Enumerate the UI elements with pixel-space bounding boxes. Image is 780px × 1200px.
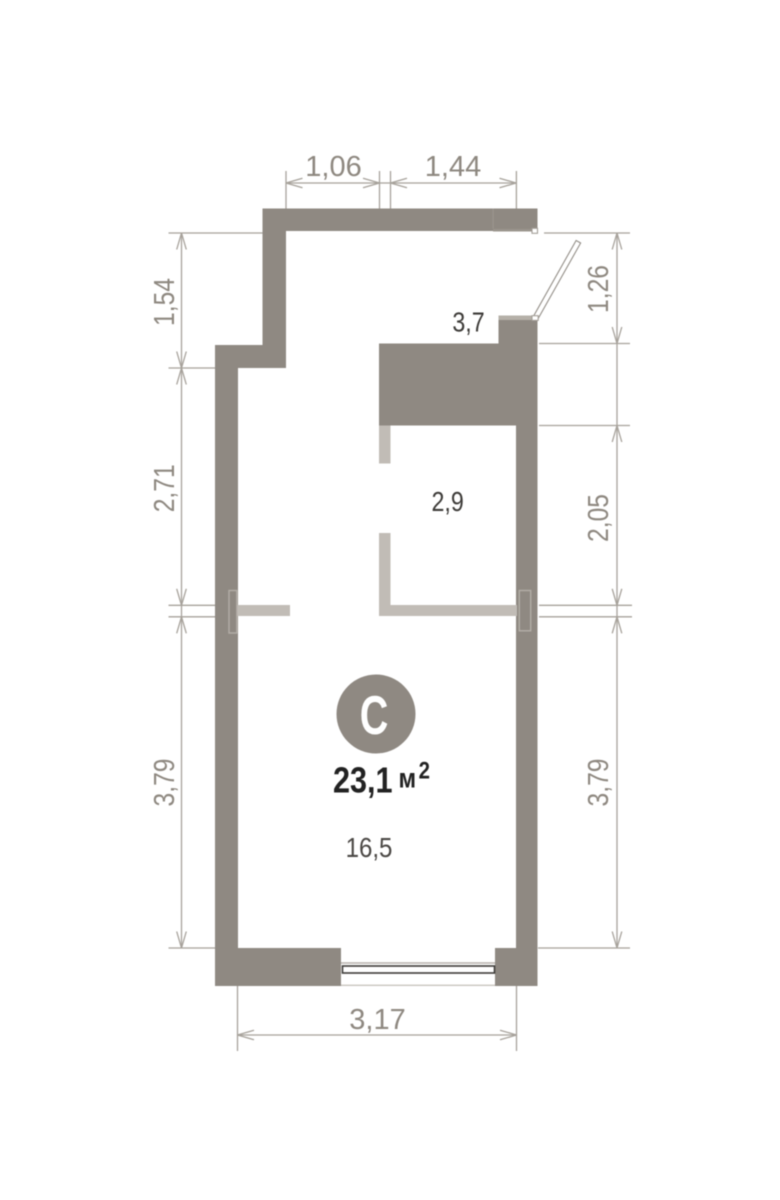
svg-text:2,71: 2,71: [148, 464, 180, 512]
svg-text:3,17: 3,17: [349, 1004, 405, 1036]
svg-text:1,26: 1,26: [582, 265, 614, 313]
svg-text:1,54: 1,54: [148, 278, 180, 326]
svg-text:16,5: 16,5: [346, 831, 393, 863]
svg-text:2,9: 2,9: [431, 487, 463, 517]
svg-text:3,79: 3,79: [148, 759, 180, 807]
svg-text:3,7: 3,7: [452, 308, 484, 338]
svg-text:1,44: 1,44: [425, 151, 481, 183]
svg-text:C: C: [360, 686, 389, 747]
svg-text:3,79: 3,79: [582, 759, 614, 807]
svg-text:1,06: 1,06: [305, 151, 361, 183]
svg-text:2,05: 2,05: [582, 494, 614, 542]
